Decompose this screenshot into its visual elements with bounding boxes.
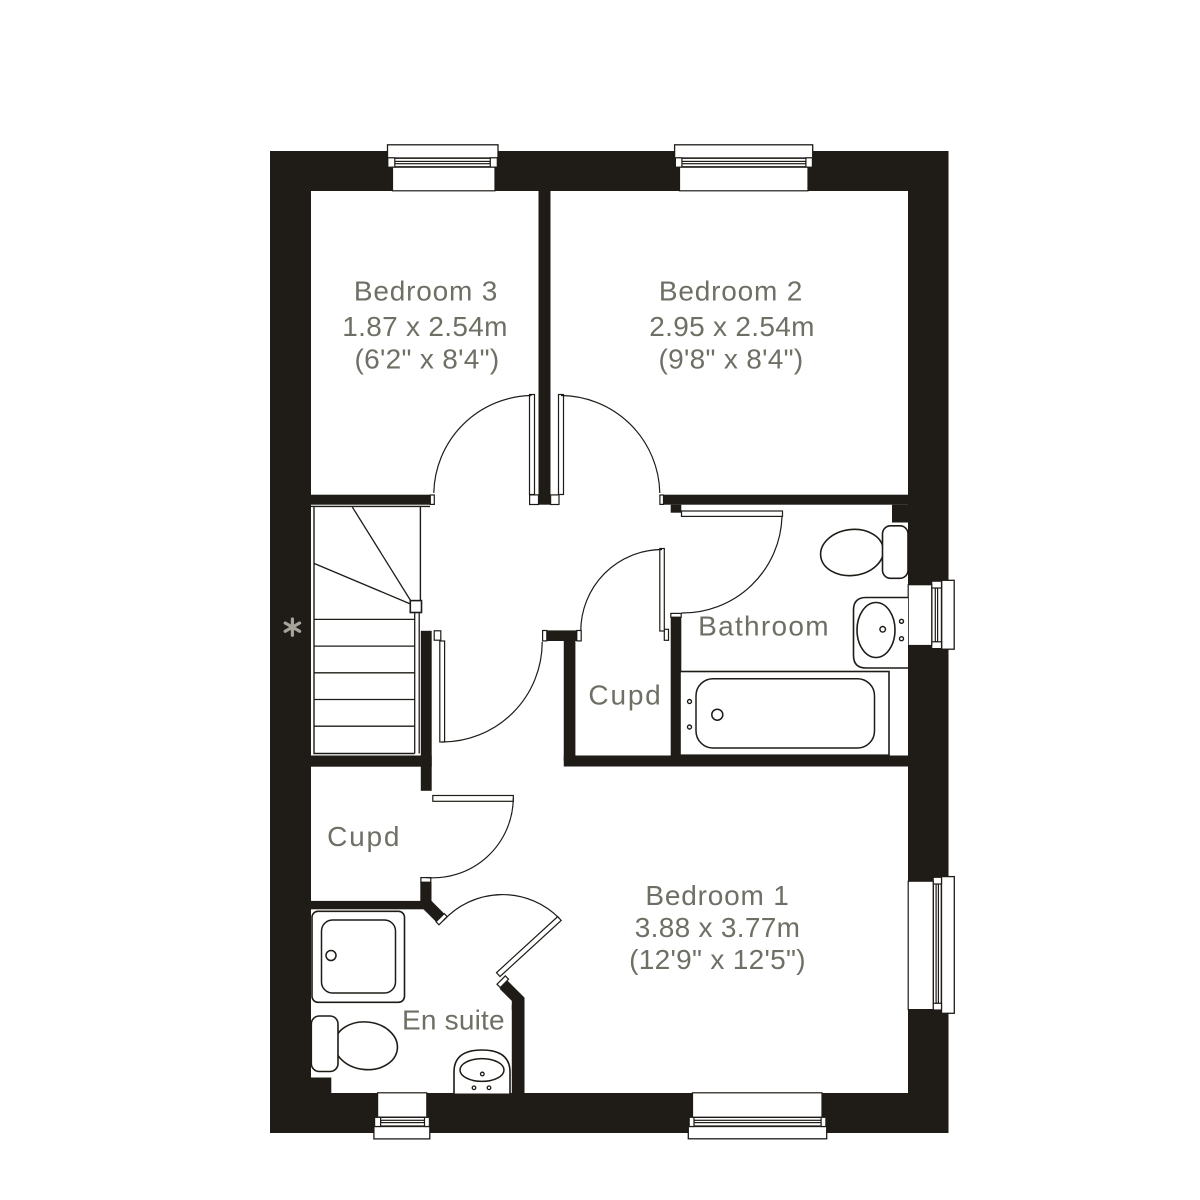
svg-text:3.88 x 3.77m: 3.88 x 3.77m — [635, 912, 800, 943]
svg-text:(12'9" x 12'5"): (12'9" x 12'5") — [629, 944, 806, 975]
svg-text:1.87 x 2.54m: 1.87 x 2.54m — [342, 311, 507, 342]
svg-text:Bedroom 2: Bedroom 2 — [659, 276, 803, 307]
svg-text:(6'2" x 8'4"): (6'2" x 8'4") — [355, 344, 500, 375]
svg-text:En suite: En suite — [402, 1005, 505, 1036]
svg-text:Bathroom: Bathroom — [698, 611, 830, 642]
svg-text:Bedroom 1: Bedroom 1 — [645, 880, 789, 911]
svg-text:(9'8" x 8'4"): (9'8" x 8'4") — [659, 344, 804, 375]
svg-text:Cupd: Cupd — [588, 680, 662, 711]
svg-text:Bedroom 3: Bedroom 3 — [354, 276, 498, 307]
svg-text:Cupd: Cupd — [327, 821, 401, 852]
svg-text:2.95 x 2.54m: 2.95 x 2.54m — [649, 311, 814, 342]
